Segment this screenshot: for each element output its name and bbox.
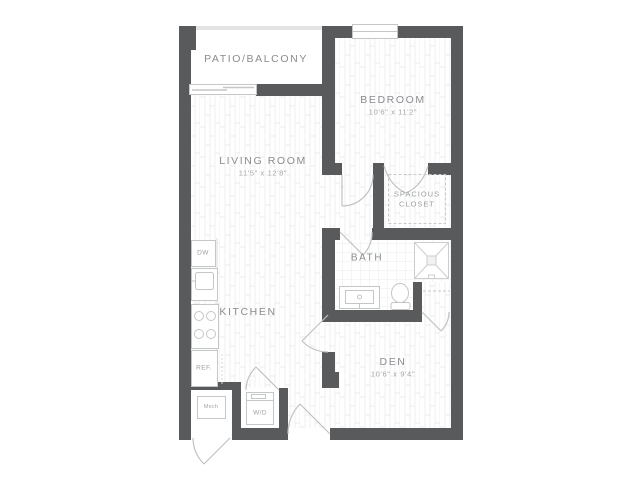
wall-segment xyxy=(413,282,422,322)
floor-den-closet xyxy=(422,282,451,310)
wall-segment xyxy=(256,84,322,96)
patio-sliding-door xyxy=(190,85,257,95)
wall-segment xyxy=(451,26,463,440)
dishwasher-outline xyxy=(192,241,216,267)
wall-segment xyxy=(232,382,241,440)
wall-segment xyxy=(322,228,335,315)
bath-vanity xyxy=(340,287,380,309)
stove xyxy=(192,305,219,349)
refrigerator-outline xyxy=(192,351,223,387)
wall-segment xyxy=(428,163,451,175)
wall-segment xyxy=(373,163,384,228)
kitchen-sink xyxy=(192,269,218,301)
wall-segment xyxy=(322,372,339,388)
wall-segment xyxy=(330,428,451,440)
washer-dryer-unit xyxy=(247,393,274,425)
floor-plan-drawing xyxy=(0,0,639,479)
floor-patio xyxy=(191,30,322,84)
toilet xyxy=(391,284,410,310)
wall-segment xyxy=(322,26,335,163)
shower xyxy=(415,243,449,279)
wall-segment xyxy=(372,228,451,240)
wall-segment xyxy=(322,310,413,322)
wall-segment xyxy=(279,388,288,440)
mech-unit xyxy=(198,397,226,419)
mech-closet-door xyxy=(193,438,230,464)
wall-segment xyxy=(322,163,342,175)
bedroom-window xyxy=(353,25,398,39)
wall-segment xyxy=(179,26,196,50)
floor-plan-image: PATIO/BALCONY BEDROOM 10'6" x 11'2" LIVI… xyxy=(0,0,639,479)
